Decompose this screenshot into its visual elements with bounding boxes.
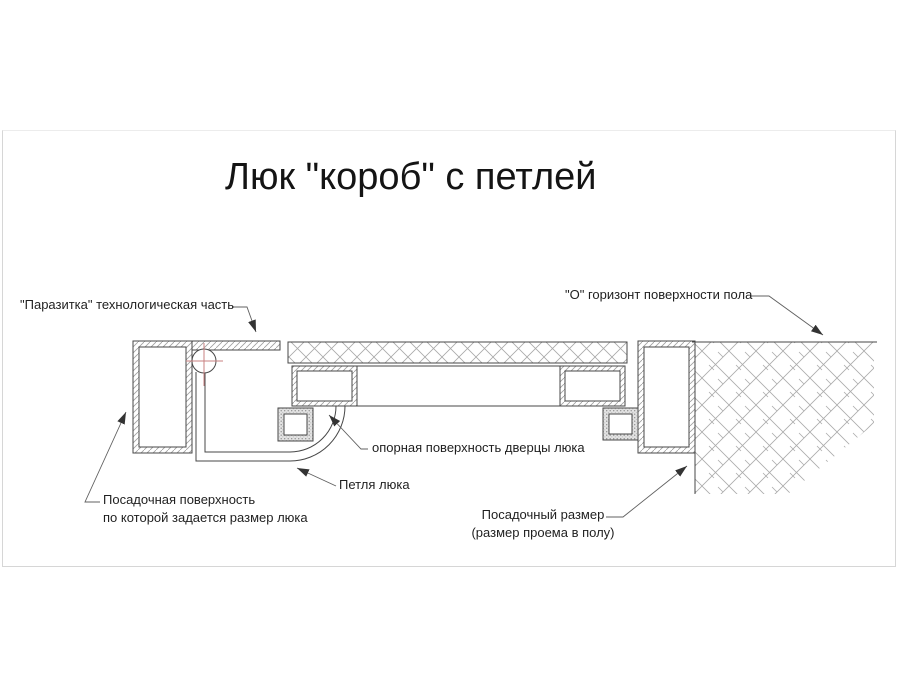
label-door-bearing-surface: опорная поверхность дверцы люка — [372, 440, 585, 456]
right-frame-profile — [638, 341, 695, 453]
label-floor-horizon: "О" горизонт поверхности пола — [565, 287, 752, 303]
floor-slab — [692, 342, 877, 494]
label-hinge: Петля люка — [339, 477, 410, 493]
left-frame-profile — [133, 341, 192, 453]
label-seating-size: Посадочный размер (размер проема в полу) — [460, 506, 626, 542]
label-seating-size-line2: (размер проема в полу) — [471, 525, 614, 540]
label-parasitka: "Паразитка" технологическая часть — [20, 297, 234, 313]
leader-hinge — [297, 468, 336, 486]
leader-bearing-surface — [329, 415, 368, 449]
label-seating-size-line1: Посадочный размер — [482, 507, 605, 522]
label-seating-surface-line2: по которой задается размер люка — [103, 510, 308, 525]
label-seating-surface-line1: Посадочная поверхность — [103, 492, 255, 507]
page: Люк "короб" с петлей — [0, 0, 900, 700]
leader-parasitka — [232, 307, 256, 332]
diagram-canvas — [0, 0, 900, 700]
hatch-door — [288, 342, 627, 406]
leader-seating-surface — [85, 412, 126, 502]
leader-floor-horizon — [750, 296, 823, 335]
label-seating-surface: Посадочная поверхность по которой задает… — [103, 491, 308, 527]
